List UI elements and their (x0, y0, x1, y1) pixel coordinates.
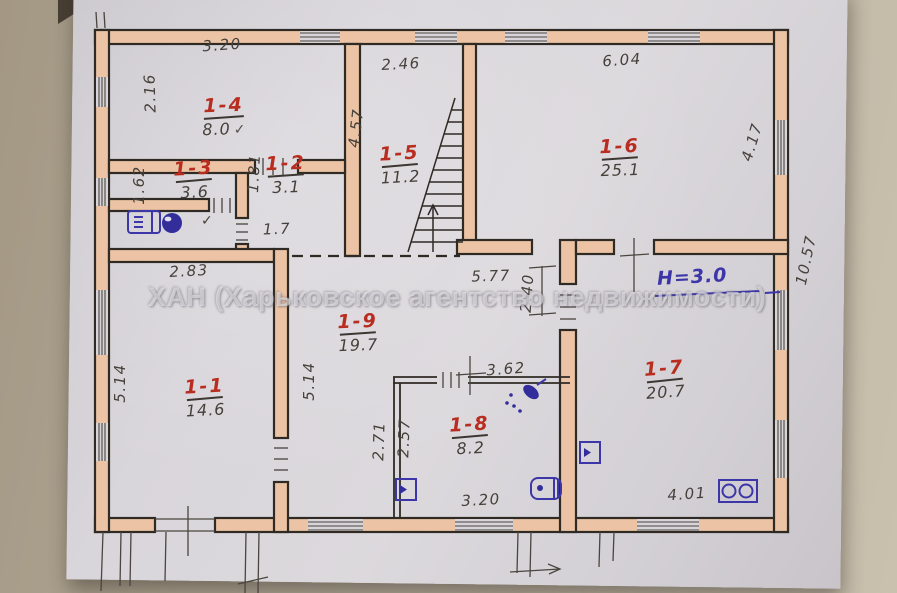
dim-room8-left: 2.71 (369, 421, 388, 461)
room-area: 25.1 (600, 160, 641, 180)
bath-checkmark: ✓ (201, 213, 213, 229)
agency-watermark: ХАН (Харьковское агентство недвижимости) (148, 282, 766, 313)
dim-room8-top: 3.62 (486, 359, 527, 380)
shower-icon (505, 379, 546, 413)
room-area: 3.1 (266, 177, 307, 197)
room-number: 1-9 (337, 311, 378, 332)
room-number: 1-6 (599, 136, 640, 157)
washing-machine-icon (128, 211, 160, 233)
room-label-1-3: 1-3 3.6 (173, 157, 216, 202)
stove-icon (719, 480, 757, 502)
vent-icon (396, 479, 416, 500)
room-number: 1-1 (184, 375, 225, 397)
checkmark: ✓ (234, 122, 247, 138)
room-label-1-4: 1-4 8.0✓ (201, 95, 247, 142)
dim-room7-bottom: 4.01 (667, 484, 708, 505)
dim-room4-top: 3.20 (202, 35, 243, 56)
room-area: 8.0 (202, 119, 231, 139)
dim-room3-left: 1.62 (130, 165, 148, 204)
room-label-1-5: 1-5 11.2 (379, 142, 422, 187)
room-label-1-9: 1-9 19.7 (337, 311, 379, 355)
dim-room8-inner: 2.57 (394, 418, 413, 458)
room-label-1-6: 1-6 25.1 (599, 136, 641, 180)
room-area: 19.7 (338, 335, 379, 355)
dim-room8-bottom: 3.20 (461, 490, 501, 510)
dim-room2-left: 1.81 (244, 153, 264, 193)
room-number: 1-3 (173, 157, 214, 179)
room-number: 1-7 (643, 357, 685, 380)
dim-room1-left: 5.14 (111, 363, 129, 402)
room-label-1-2: 1-2 3.1 (265, 153, 307, 197)
room-area: 3.6 (174, 181, 215, 202)
dim-room1-right: 5.14 (300, 361, 318, 400)
dim-room6-top: 6.04 (602, 50, 643, 71)
room-number: 1-5 (379, 142, 420, 164)
room-area: 11.2 (380, 166, 421, 187)
sink-icon (162, 213, 182, 233)
dim-room1-top: 2.83 (169, 261, 209, 281)
dim-room4-left: 2.16 (140, 73, 159, 113)
room-area: 8.2 (450, 437, 491, 458)
room-number: 1-8 (449, 413, 490, 435)
room-area: 14.6 (185, 399, 226, 420)
dim-room2-bottom: 1.7 (263, 220, 292, 239)
room-number: 1-2 (265, 153, 306, 174)
room-label-1-1: 1-1 14.6 (184, 375, 227, 420)
room-number: 1-4 (201, 95, 246, 117)
room-label-1-8: 1-8 8.2 (449, 413, 492, 458)
floorplan: 1-4 8.0✓ 1-3 3.6 1-2 3.1 1-5 11.2 1-6 25… (0, 0, 897, 593)
vent-icon (580, 442, 600, 463)
room-area: 20.7 (645, 381, 687, 403)
floorplan-photo: 1-4 8.0✓ 1-3 3.6 1-2 3.1 1-5 11.2 1-6 25… (0, 0, 897, 593)
dim-room5-top: 2.46 (381, 54, 421, 74)
room-label-1-7: 1-7 20.7 (643, 357, 686, 403)
water-heater-icon (531, 478, 561, 499)
